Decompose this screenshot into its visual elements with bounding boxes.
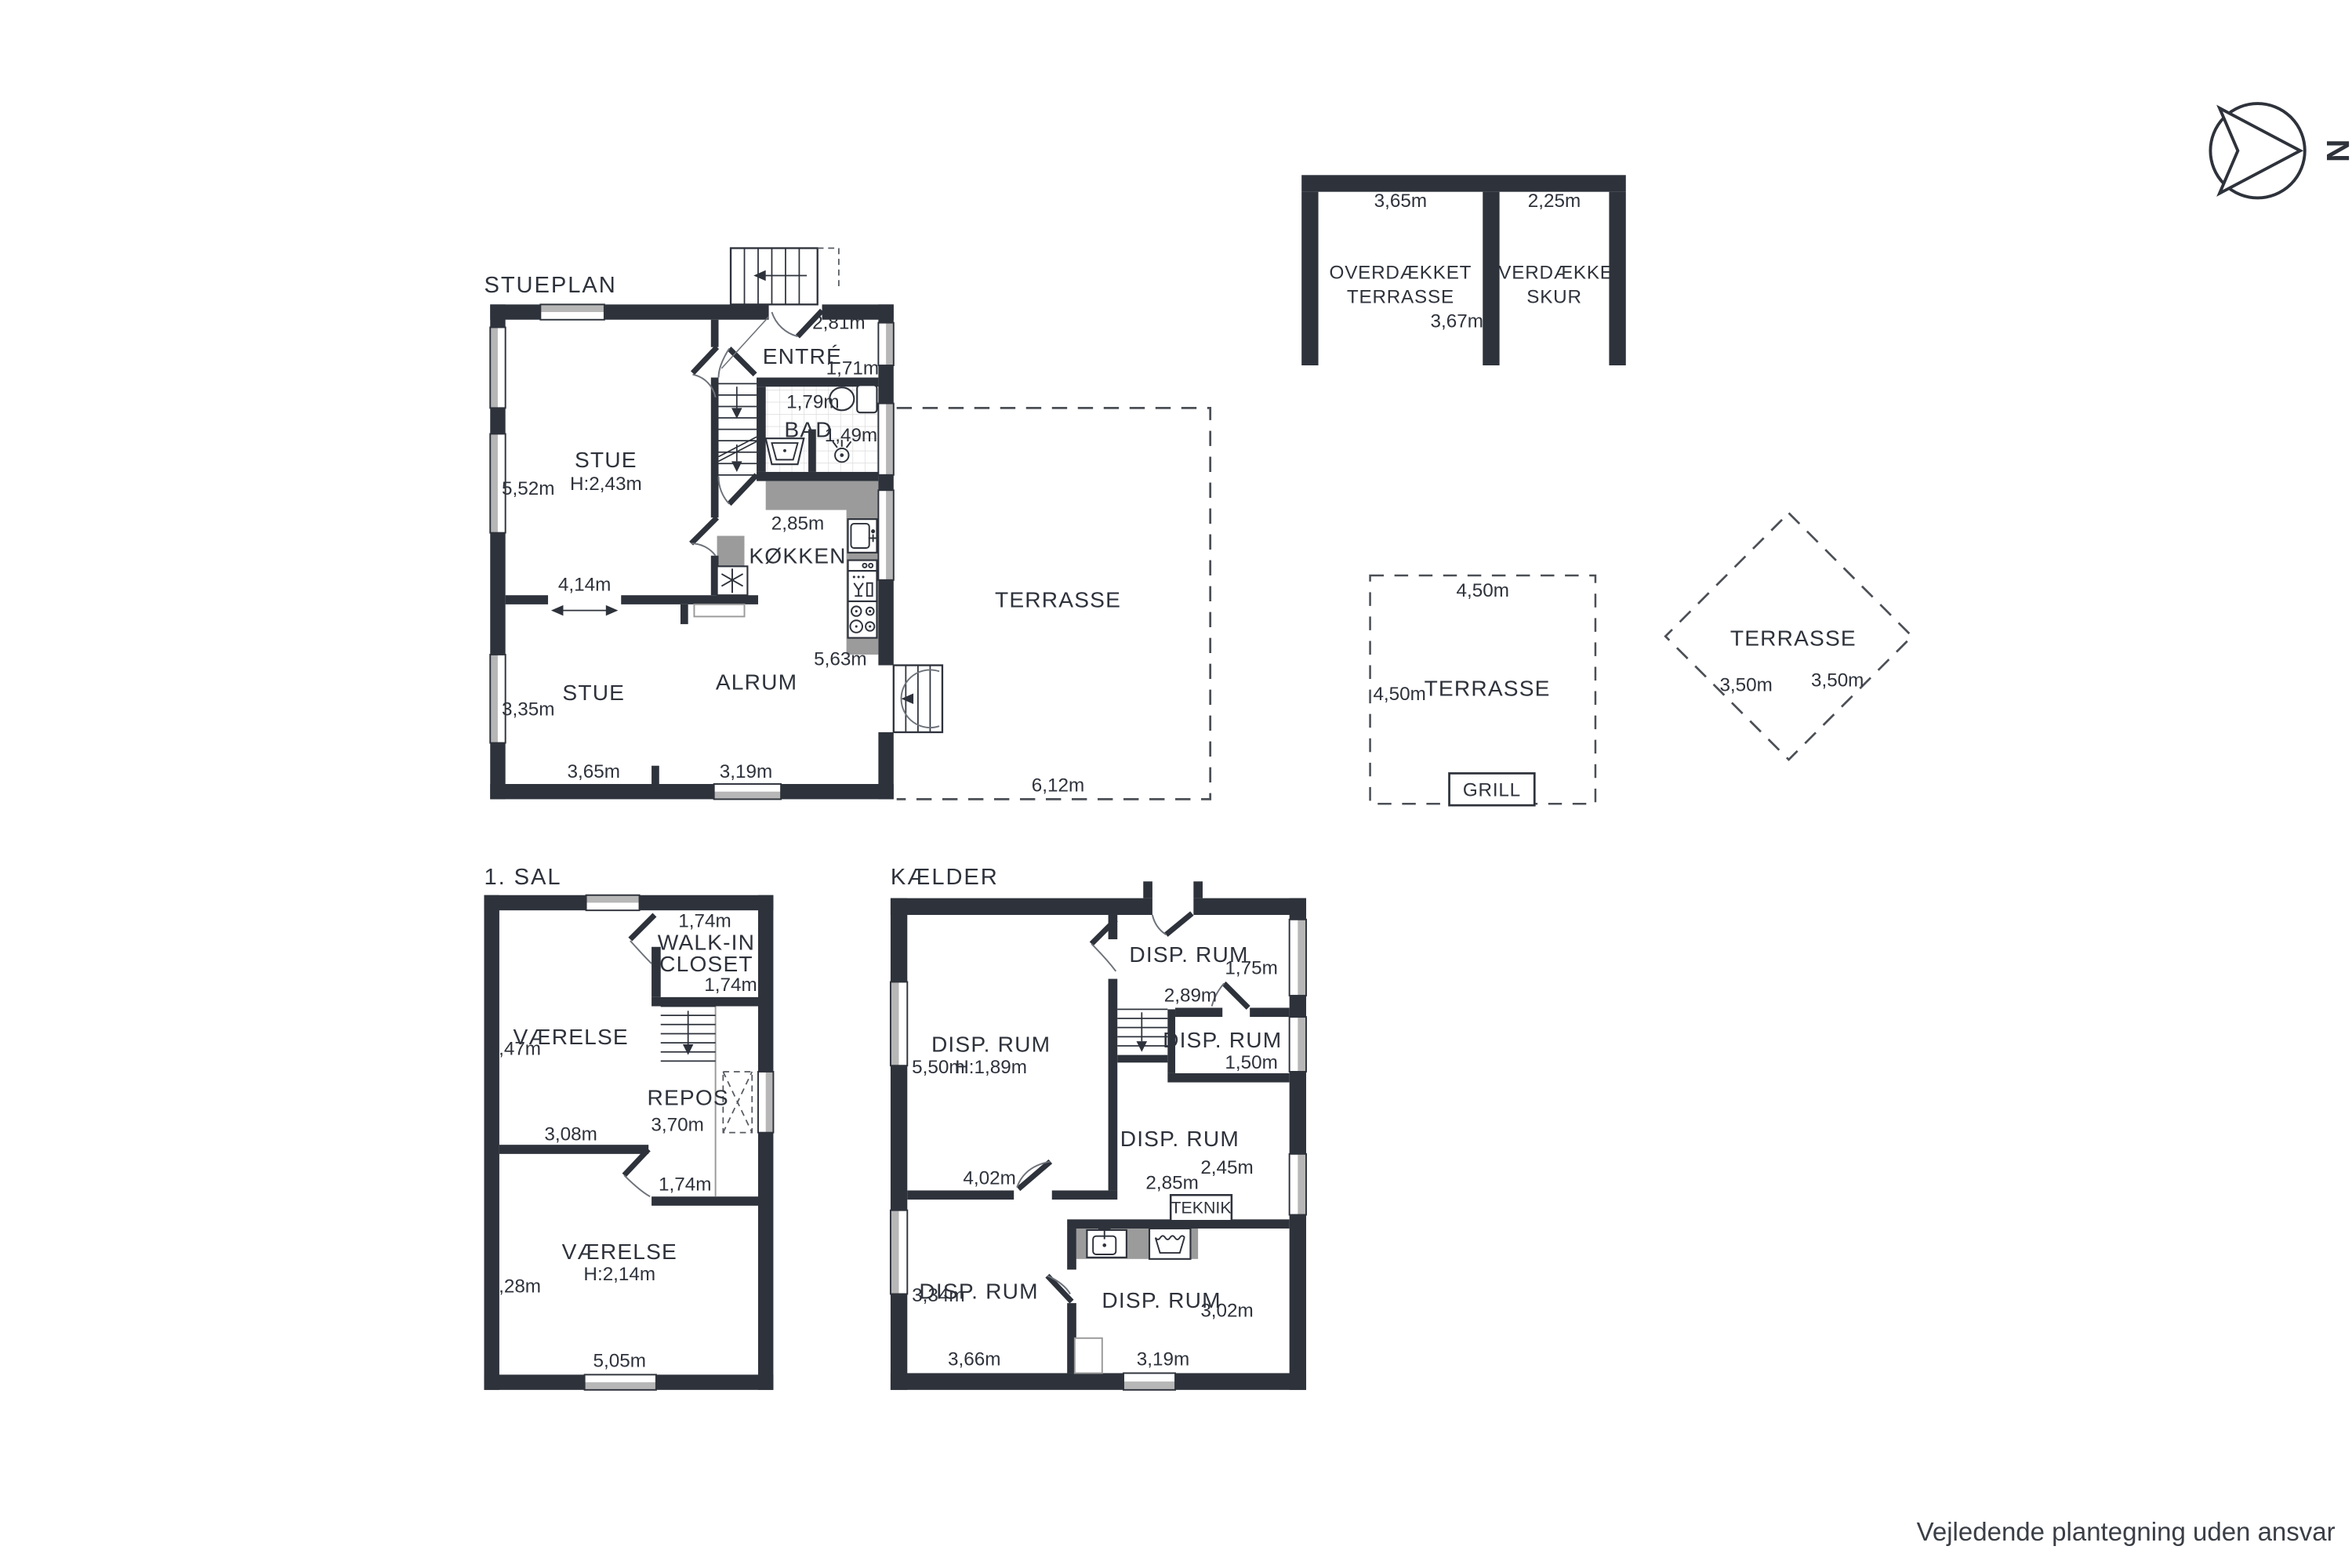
dim-alrum-bottom: 3,19m xyxy=(720,761,772,782)
shower-base-outline xyxy=(1075,1338,1102,1374)
dim-stue-lower-left: 3,35m xyxy=(502,699,554,720)
dim-koekken-top: 2,85m xyxy=(771,514,824,535)
dim-bad-right: 1,49m xyxy=(825,425,877,446)
window xyxy=(891,982,907,1065)
room-label-alrum: ALRUM xyxy=(716,670,797,695)
window xyxy=(585,1374,656,1389)
dim-vaerelse-upper-bottom: 3,08m xyxy=(544,1123,597,1145)
room-label-covered-shed-1: OVERDÆKKET xyxy=(1483,262,1626,283)
terrace-door-steps xyxy=(894,666,942,732)
door xyxy=(1047,1276,1072,1301)
dim-disp-midright: 1,50m xyxy=(1225,1052,1277,1073)
door xyxy=(630,915,655,964)
dim-stue-left: 5,52m xyxy=(502,478,554,499)
dim-vaerelse-upper-left: 4,47m xyxy=(488,1039,541,1060)
dim-covered-shed: 2,25m xyxy=(1528,191,1581,212)
stove-icon xyxy=(848,601,877,638)
door xyxy=(691,517,717,556)
dim-disp-right: 2,45m xyxy=(1200,1157,1253,1178)
grill-label: GRILL xyxy=(1463,780,1521,801)
terrace-diamond: TERRASSE 3,50m 3,50m xyxy=(1665,513,1912,760)
window xyxy=(540,304,604,319)
room-label-disp-main: DISP. RUM xyxy=(931,1033,1051,1057)
window xyxy=(878,490,893,580)
opening-arrow xyxy=(551,605,618,616)
room-label-stue-lower: STUE xyxy=(562,681,625,705)
north-arrow-icon xyxy=(2220,108,2300,194)
floorplan-canvas: STUEPLAN xyxy=(0,0,2352,1559)
window xyxy=(891,1210,907,1294)
dim-disp-main-left: 5,50m xyxy=(912,1057,964,1078)
room-label-covered-shed-2: SKUR xyxy=(1526,286,1582,307)
window xyxy=(1290,1017,1306,1072)
dim-vaerelse-lower-ceiling: H:2,14m xyxy=(583,1264,655,1285)
dim-koekken-right: 5,63m xyxy=(814,649,866,670)
door xyxy=(692,347,717,397)
dim-covered-terrace-inner: 3,67m xyxy=(1431,310,1483,332)
dim-disp-main-ceiling: H:1,89m xyxy=(955,1057,1027,1078)
door xyxy=(1212,983,1249,1007)
dim-kaelder-hall: 2,89m xyxy=(1164,985,1217,1007)
room-label-vaerelse-lower: VÆRELSE xyxy=(562,1240,677,1264)
door xyxy=(1017,1162,1051,1189)
floor-label-1sal: 1. SAL xyxy=(484,865,561,890)
dim-diamond-b: 3,50m xyxy=(1811,670,1864,691)
dim-entre-right: 1,71m xyxy=(826,358,879,379)
dim-vaerelse-lower-left: 4,28m xyxy=(488,1276,541,1298)
floor-label-kaelder: KÆLDER xyxy=(891,865,999,890)
laundry-sink-icon xyxy=(1087,1227,1126,1258)
floor-plan-kaelder: KÆLDER xyxy=(891,865,1306,1390)
window xyxy=(758,1072,773,1133)
door xyxy=(719,349,756,378)
room-label-disp-midright: DISP. RUM xyxy=(1163,1028,1282,1052)
compass: N xyxy=(2210,103,2352,198)
dim-disp-right-2: 2,85m xyxy=(1145,1173,1198,1194)
dim-walkin-top: 1,74m xyxy=(678,911,731,932)
dim-opening: 4,14m xyxy=(558,574,611,595)
floorplan-page: STUEPLAN xyxy=(0,0,2352,1559)
dim-stue-lower-bottom: 3,65m xyxy=(568,761,620,782)
dim-vaerelse-lower-bottom: 5,05m xyxy=(593,1351,646,1372)
room-label-covered-terrace-1: OVERDÆKKET xyxy=(1330,262,1472,283)
room-label-stue-upper: STUE xyxy=(575,448,637,472)
terrace-grill: 4,50m 4,50m TERRASSE GRILL xyxy=(1370,575,1595,805)
dim-grill-terrace-top: 4,50m xyxy=(1457,580,1509,601)
kitchen-counter-top xyxy=(766,481,879,510)
window xyxy=(1290,920,1306,996)
dim-disp-bottomright-right: 3,02m xyxy=(1200,1301,1253,1322)
dim-terrace-bottom: 6,12m xyxy=(1032,775,1084,797)
room-label-covered-terrace-2: TERRASSE xyxy=(1347,286,1454,307)
dim-grill-terrace-left: 4,50m xyxy=(1373,684,1425,705)
room-label-koekken: KØKKEN xyxy=(749,543,846,568)
fridge-icon xyxy=(717,566,748,595)
staircase-1sal xyxy=(661,1006,716,1061)
terrace-attached: TERRASSE 6,12m xyxy=(897,408,1210,799)
floor-plan-stueplan: STUEPLAN xyxy=(484,249,942,800)
dim-disp-bottomleft-top: 4,02m xyxy=(963,1168,1015,1189)
teknik-label: TEKNIK xyxy=(1171,1199,1231,1218)
room-label-walkin-2: CLOSET xyxy=(659,952,753,976)
door xyxy=(719,475,757,504)
dim-bad-top: 1,79m xyxy=(786,391,839,412)
washing-machine-icon xyxy=(1149,1229,1190,1259)
window xyxy=(878,404,893,475)
dim-diamond-a: 3,50m xyxy=(1719,675,1772,696)
dim-repos: 3,70m xyxy=(651,1115,703,1136)
disclaimer-text: Vejledende plantegning uden ansvar xyxy=(1917,1517,2336,1546)
dim-walkin-bottom: 1,74m xyxy=(704,975,757,996)
north-label: N xyxy=(2320,140,2352,162)
dim-disp-bottomleft-left: 3,34m xyxy=(912,1285,964,1306)
room-label-disp-right: DISP. RUM xyxy=(1120,1127,1240,1151)
room-label-repos: REPOS xyxy=(647,1086,728,1110)
kitchen-cabinet xyxy=(717,535,745,566)
staircase-stueplan xyxy=(719,383,757,475)
dim-stue-ceiling: H:2,43m xyxy=(570,474,642,495)
door xyxy=(624,1149,650,1196)
dim-disp-bottomleft-bottom: 3,66m xyxy=(948,1349,1000,1370)
dim-covered-terrace: 3,65m xyxy=(1374,191,1427,212)
dim-disp-topright: 1,75m xyxy=(1225,958,1277,979)
staircase-kaelder xyxy=(1117,1009,1167,1051)
floor-label-stueplan: STUEPLAN xyxy=(484,273,616,298)
window xyxy=(490,327,505,408)
window xyxy=(586,895,640,910)
dim-hall: 1,74m xyxy=(659,1174,711,1195)
bath-sink-icon xyxy=(766,438,804,464)
kitchen-island-outline xyxy=(694,604,744,617)
dim-entre-top: 2,81m xyxy=(812,312,865,333)
window xyxy=(1290,1154,1306,1215)
basement-entrance-door xyxy=(1152,913,1192,935)
window xyxy=(714,784,781,799)
kitchen-sink-icon xyxy=(848,519,878,553)
terrace-grill-label: TERRASSE xyxy=(1425,676,1551,700)
floor-plan-1sal: 1. SAL 1,74m WALK-IN CLOSET xyxy=(484,865,773,1390)
window xyxy=(1123,1373,1175,1389)
entrance-steps xyxy=(731,249,839,305)
dishwasher-icon xyxy=(848,561,877,601)
terrace-diamond-label: TERRASSE xyxy=(1730,626,1857,650)
dim-disp-bottomright-bottom: 3,19m xyxy=(1137,1349,1189,1370)
window xyxy=(878,323,893,365)
covered-terrace-shed: 3,65m 2,25m OVERDÆKKET TERRASSE 3,67m OV… xyxy=(1301,175,1626,365)
terrace-label: TERRASSE xyxy=(995,588,1121,612)
